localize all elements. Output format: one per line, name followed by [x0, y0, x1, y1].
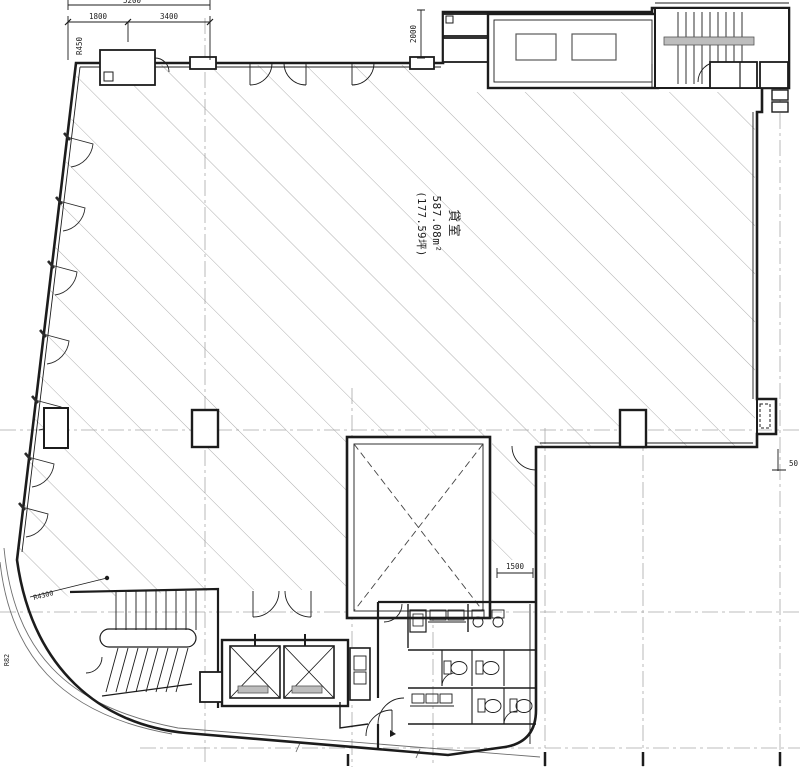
stair-southwest [30, 576, 218, 708]
dim-50: 50 [789, 459, 799, 468]
toilet-stalls-row1 [442, 650, 504, 686]
radius-r4300: R4300 [33, 589, 55, 602]
dim-1500: 1500 [506, 562, 525, 571]
dim-1800: 1800 [89, 12, 108, 21]
stair-landing-bar [664, 37, 754, 45]
room-name-label: 貸室 [447, 209, 462, 238]
room-area-sqm: 587.08m² [430, 196, 443, 253]
right-wall-pipe-shaft [757, 399, 786, 471]
elevators [200, 634, 348, 706]
dim-2000: 2000 [409, 24, 418, 43]
floor-plan-sheet: 5200 1800 3400 R450 2000 1500 50 R4300 R… [0, 0, 800, 767]
core-shaft [347, 437, 490, 618]
toilet-stalls-row2 [410, 688, 532, 724]
radius-r82: R82 [3, 654, 11, 666]
grid-ticks-bottom [348, 752, 780, 766]
equipment-unit-2 [572, 34, 616, 60]
machine-room [488, 14, 676, 88]
floor-plan-canvas: 5200 1800 3400 R450 2000 1500 50 R4300 R… [0, 0, 800, 767]
room-area-tsubo: (177.59坪) [415, 191, 428, 257]
storage-rooms [443, 14, 488, 62]
restrooms [378, 602, 536, 748]
dim-3400: 3400 [160, 12, 179, 21]
ps-dashed-box [760, 404, 770, 428]
dim-total-top: 5200 [123, 0, 142, 5]
radius-r450: R450 [75, 36, 84, 55]
equipment-unit-1 [516, 34, 556, 60]
